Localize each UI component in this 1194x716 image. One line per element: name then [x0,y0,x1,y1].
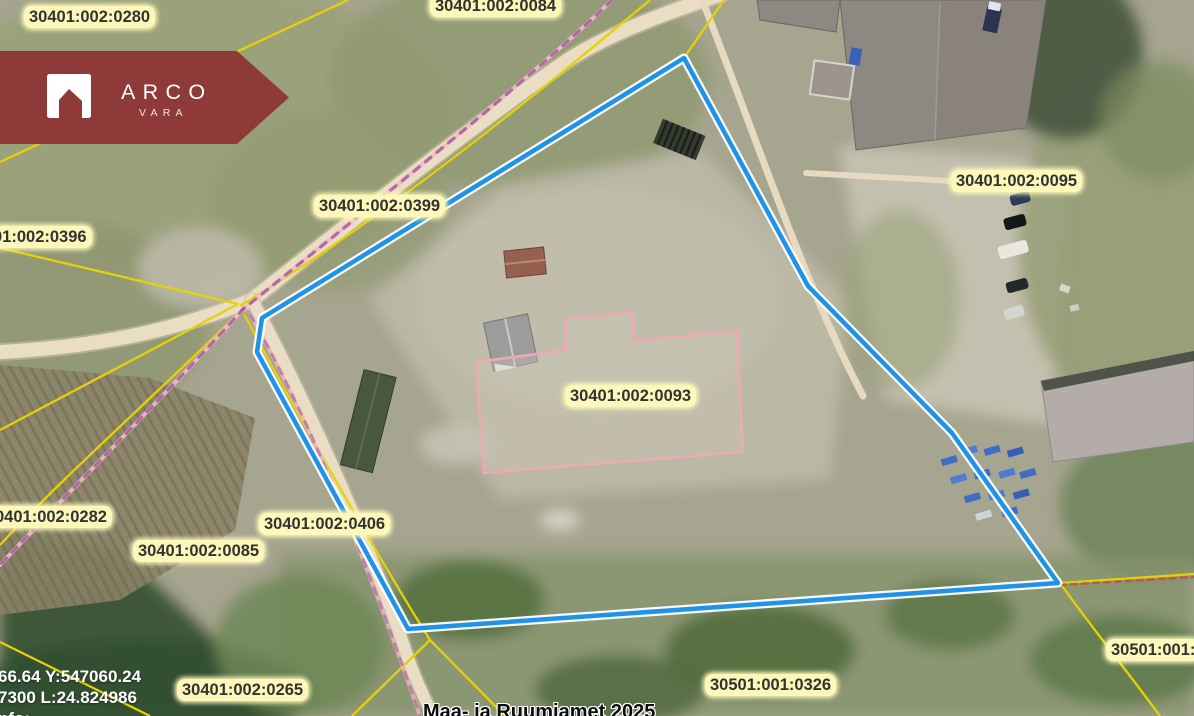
red-roof-shed [504,247,547,278]
parcel-label[interactable]: 30401:002:0399 [314,195,445,217]
parcel-label[interactable]: 30401:002:0406 [259,513,390,535]
coordinate-line-2: 7300 L:24.824986 [0,687,141,708]
brand-name: ARCO [121,80,212,104]
parcel-label[interactable]: 30501:001: [1106,639,1194,661]
arco-vara-house-icon [47,74,91,118]
coordinate-readout: 66.64 Y:547060.24 7300 L:24.824986 nfo: [0,666,141,716]
parcel-label[interactable]: 30401:002:0095 [951,170,1082,192]
coordinate-line-1: 66.64 Y:547060.24 [0,666,141,687]
parcel-label[interactable]: 30401:002:0084 [430,0,561,17]
parcel-label[interactable]: 30401:002:0085 [133,540,264,562]
parcel-label[interactable]: 30401:002:0280 [24,6,155,28]
coordinate-line-3: nfo: [0,708,141,716]
parcel-label[interactable]: 30501:001:0326 [705,674,836,696]
parcel-label[interactable]: 30401:002:0265 [177,679,308,701]
parcel-label[interactable]: 01:002:0396 [0,226,92,248]
map-viewport[interactable]: 30401:002:0280 30401:002:0084 30401:002:… [0,0,1194,716]
map-attribution: Maa- ja Ruumiamet 2025 [423,700,655,716]
parcel-label-selected[interactable]: 30401:002:0093 [565,385,696,407]
parcel-label[interactable]: 0401:002:0282 [0,506,112,528]
brand-banner: ARCO VARA [0,51,289,144]
brand-subname: VARA [139,107,188,119]
small-shed [810,60,854,99]
